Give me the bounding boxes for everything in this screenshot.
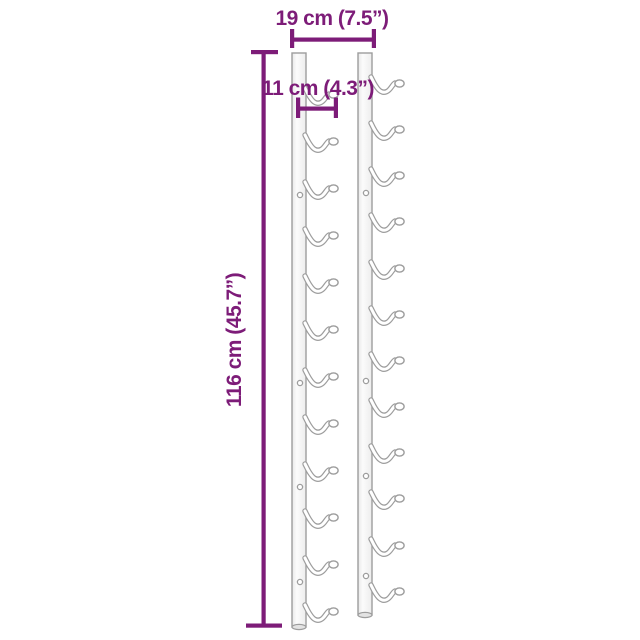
bottle-hook	[371, 123, 404, 138]
bottle-hook	[305, 323, 338, 338]
height-dimension: 116 cm (45.7”)	[223, 50, 282, 628]
screw-hole	[297, 579, 302, 584]
height-dimension-cap-bottom	[246, 624, 282, 628]
width-dimension-tick-right	[372, 29, 376, 48]
bottle-hook	[305, 558, 338, 573]
bottle-hook	[305, 229, 338, 244]
rail-right	[358, 53, 404, 618]
diagram-svg: 19 cm (7.5”) 11 cm (4.3”) 116 cm (45.7”)	[0, 0, 640, 640]
height-dimension-label: 116 cm (45.7”)	[223, 273, 246, 407]
screw-hole	[363, 190, 368, 195]
bottle-hook	[371, 539, 404, 554]
bottle-hook	[305, 370, 338, 385]
bottle-hook	[305, 417, 338, 432]
wine-rack-dimension-diagram: 19 cm (7.5”) 11 cm (4.3”) 116 cm (45.7”)	[0, 0, 640, 640]
bottle-hook	[371, 169, 404, 184]
depth-dimension-tick-left	[296, 98, 300, 119]
width-dimension-line	[290, 38, 376, 42]
height-dimension-line	[262, 51, 266, 626]
bottle-hook	[305, 464, 338, 479]
depth-dimension-tick-right	[334, 98, 338, 119]
bottle-hook	[371, 492, 404, 507]
width-dimension-tick-left	[290, 29, 294, 48]
bottle-hook	[371, 585, 404, 600]
bottle-hook	[371, 400, 404, 415]
rail-left	[292, 53, 338, 630]
screw-hole	[297, 484, 302, 489]
bottle-hook	[371, 262, 404, 277]
wine-rack-figure	[292, 53, 404, 630]
screw-hole	[363, 378, 368, 383]
depth-dimension-line	[296, 107, 338, 111]
bottle-hook	[305, 135, 338, 150]
width-dimension: 19 cm (7.5”)	[275, 7, 388, 48]
screw-hole	[363, 473, 368, 478]
screw-hole	[297, 192, 302, 197]
bottle-hook	[305, 511, 338, 526]
screw-hole	[363, 573, 368, 578]
bottle-hook	[305, 276, 338, 291]
bottle-hook	[371, 446, 404, 461]
width-dimension-label: 19 cm (7.5”)	[275, 7, 388, 30]
rail-base	[292, 624, 306, 629]
depth-dimension: 11 cm (4.3”)	[262, 77, 374, 118]
bottle-hook	[371, 77, 404, 92]
bottle-hook	[371, 354, 404, 369]
height-dimension-cap-top	[251, 50, 278, 54]
bottle-hook	[371, 308, 404, 323]
rail-bar	[292, 53, 306, 627]
rail-bar	[358, 53, 372, 615]
bottle-hook	[305, 182, 338, 197]
bottle-hook	[305, 605, 338, 620]
bottle-hook	[371, 215, 404, 230]
depth-dimension-label: 11 cm (4.3”)	[262, 77, 374, 100]
screw-hole	[297, 380, 302, 385]
rail-base	[358, 612, 372, 617]
